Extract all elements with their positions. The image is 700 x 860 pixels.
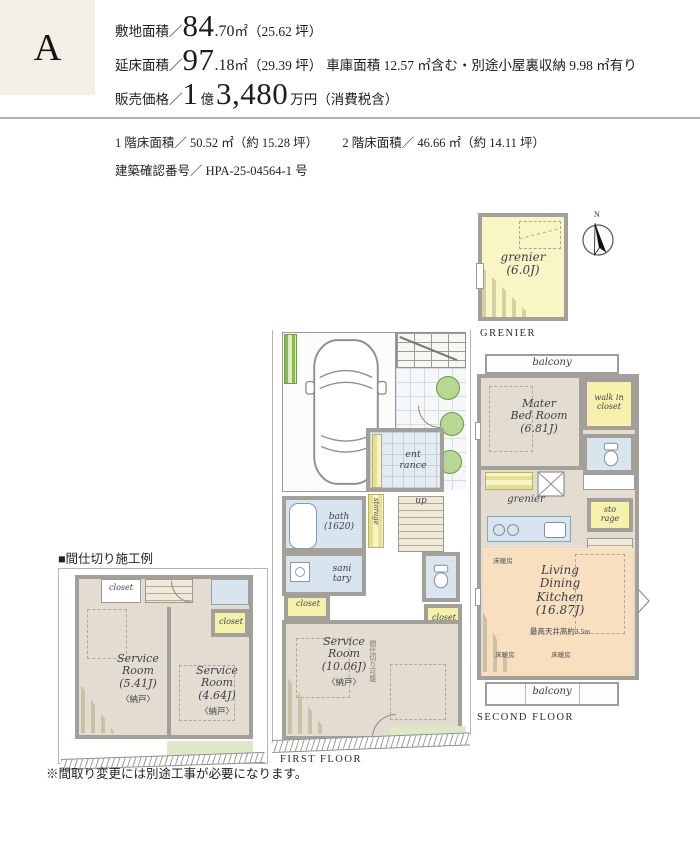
stove-burner-icon	[507, 524, 519, 536]
sanitary-label: sani tary	[322, 564, 362, 584]
bathroom: bath (1620)	[282, 496, 366, 552]
garage-attic-note: 車庫面積 12.57 ㎡含む・別途小屋裏収納 9.98 ㎡有り	[326, 54, 637, 74]
corner-hatch	[483, 612, 513, 672]
grenier-plan: grenier (6.0J) GRENIER N	[476, 208, 626, 348]
price-man: 3,480	[216, 76, 288, 112]
floor-heating-label: 床暖房	[491, 652, 519, 659]
bay-window-icon	[637, 588, 651, 614]
hedge	[284, 334, 297, 384]
compass-icon: N	[576, 208, 620, 262]
svg-text:N: N	[594, 210, 600, 219]
storage-strip-label: storage	[371, 498, 379, 525]
window-slot	[475, 588, 481, 606]
plan-type-box: A	[0, 0, 95, 95]
attic-hatch-outline	[519, 221, 561, 249]
site-area-value: 84	[183, 8, 215, 44]
first-floor-area: 1 階床面積／ 50.52 ㎡（約 15.28 坪）	[115, 136, 318, 150]
bath-label: bath (1620)	[316, 512, 362, 532]
window-slot	[475, 422, 481, 440]
partition-room-right-label: Service Room (4.64J)	[177, 665, 257, 702]
partition-closet-right-label: closet	[215, 618, 247, 627]
partition-example-title: ■間仕切り施工例	[58, 548, 153, 567]
second-floor-area: 2 階床面積／ 46.66 ㎡（約 14.11 坪）	[342, 136, 545, 150]
site-area-line: 敷地面積／ 84 .70 ㎡ （25.62 坪）	[115, 8, 637, 42]
second-floor-plan: balcony Mater Bed Room (6.81J) walk in c…	[475, 352, 650, 732]
grenier-room: grenier (6.0J)	[478, 213, 568, 321]
confirmation-number: 建築確認番号／ HPA-25-04564-1 号	[115, 160, 308, 179]
stairs-up-label: up	[404, 496, 438, 506]
closet-top: closet	[101, 579, 141, 603]
storage-2f-label: sto rage	[597, 506, 623, 524]
grenier-access-label: grenier	[489, 494, 563, 505]
site-area-label: 敷地面積／	[115, 20, 183, 40]
ceiling-height-note: 最高天井高約3.5m	[515, 628, 605, 636]
toilet-icon	[601, 441, 621, 469]
washer-drum	[295, 567, 305, 577]
partition-closet-right: closet	[211, 609, 249, 637]
partition-note: ※間取り変更には別途工事が必要になります。	[46, 763, 307, 782]
ldk-label: Living Dining Kitchen (16.87J)	[515, 564, 605, 618]
partition-site: closet closet Service Room (5.41J) 〈納戸〉 …	[58, 568, 268, 764]
price-label: 販売価格／	[115, 88, 183, 108]
service-room-label: Service Room (10.06J)	[294, 636, 394, 673]
floorplan-flyer: A 敷地面積／ 84 .70 ㎡ （25.62 坪） 延床面積／ 97 .18 …	[0, 0, 700, 860]
balcony-bottom: balcony	[485, 682, 619, 706]
floor-area-value: 97	[183, 42, 215, 78]
closet-left: closet	[284, 594, 330, 620]
floor-heating-label: 床暖房	[547, 652, 575, 659]
vanity	[583, 474, 635, 490]
plan-type-label: A	[34, 26, 61, 70]
floor-area-label: 延床面積／	[115, 54, 183, 74]
entrance-room: ent rance	[366, 428, 444, 492]
master-bedroom-label: Mater Bed Room (6.81J)	[493, 398, 585, 435]
bush-icon	[436, 376, 460, 400]
header-info: 敷地面積／ 84 .70 ㎡ （25.62 坪） 延床面積／ 97 .18 ㎡ …	[115, 8, 637, 110]
grenier-caption: GRENIER	[480, 328, 536, 339]
toilet-icon	[431, 562, 451, 592]
service-room-sub-label: 〈納戸〉	[294, 678, 394, 688]
floor-area-line: 延床面積／ 97 .18 ㎡ （29.39 坪） 車庫面積 12.57 ㎡含む・…	[115, 42, 637, 76]
shoe-cabinet	[372, 434, 382, 488]
balcony-top: balcony	[485, 354, 619, 374]
furniture-outline	[390, 664, 446, 720]
partition-room-left-sub: 〈納戸〉	[95, 695, 181, 705]
partition-room-left-label: Service Room (5.41J)	[95, 653, 181, 690]
first-floor-plan: ent rance up storage bath (1620) sani ta…	[272, 330, 472, 770]
corner-hatch	[81, 685, 115, 733]
interior-wall	[579, 378, 583, 470]
toilet-room-2f	[583, 434, 635, 474]
sanitary-room: sani tary	[282, 552, 366, 596]
price-oku: 1	[183, 76, 199, 112]
partition-wet-area	[211, 579, 249, 605]
header-divider	[0, 117, 700, 119]
partition-room-right-sub: 〈納戸〉	[177, 707, 257, 717]
entrance-label: ent rance	[388, 450, 438, 471]
sink-icon	[544, 522, 566, 538]
walk-in-closet: walk in closet	[583, 378, 635, 430]
grenier-room-label: grenier (6.0J)	[488, 251, 558, 278]
balcony-bottom-label: balcony	[517, 686, 587, 697]
grenier-door	[476, 263, 484, 289]
interior-wall	[481, 466, 581, 470]
toilet-room-1f	[422, 552, 460, 602]
walk-in-closet-label: walk in closet	[589, 394, 629, 412]
closet-top-label: closet	[105, 584, 137, 593]
site-boundary-right	[470, 330, 471, 735]
second-floor-caption: SECOND FLOOR	[477, 712, 574, 723]
bathtub-icon	[289, 503, 317, 549]
stove-burner-icon	[493, 524, 505, 536]
balcony-top-label: balcony	[517, 357, 587, 368]
partition-example: ■間仕切り施工例 closet closet Service Room (5.4…	[56, 546, 274, 796]
floor-heating-label: 床暖房	[489, 558, 517, 565]
partitionable-label: 間仕切り可能	[368, 640, 376, 682]
grenier-ladder	[485, 472, 533, 490]
closet-left-label: closet	[290, 600, 326, 609]
kitchen-counter	[487, 516, 571, 542]
price-line: 販売価格／ 1 億 3,480 万円 （消費税含）	[115, 76, 637, 110]
floor-areas-line: 1 階床面積／ 50.52 ㎡（約 15.28 坪） 2 階床面積／ 46.66…	[115, 132, 545, 151]
storage-2f: sto rage	[587, 498, 633, 532]
